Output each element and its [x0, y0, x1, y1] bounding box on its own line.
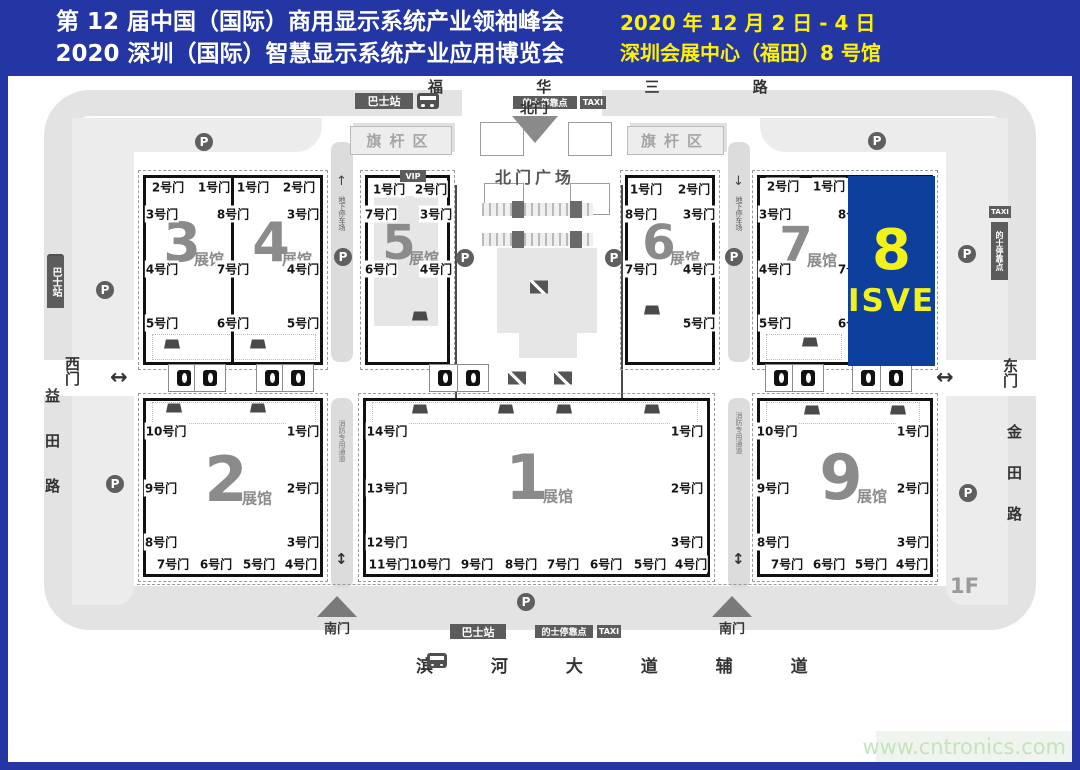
- east-gate-label: 东门: [1000, 358, 1021, 388]
- door-label: 6号门: [216, 315, 250, 332]
- door-label: 6号门: [589, 556, 623, 573]
- ac-unit-icon: [890, 406, 906, 415]
- escalator-icon: [530, 281, 548, 294]
- door-label: 10号门: [409, 556, 452, 573]
- arrow-updown-icon: ↕: [732, 550, 745, 568]
- door-label: 1号门: [629, 181, 663, 198]
- escalator-block: [512, 231, 524, 248]
- taxi-badge: TAXI: [989, 206, 1011, 218]
- door-label: 4号门: [682, 261, 716, 278]
- door-label: 3号门: [682, 206, 716, 223]
- door-label: 7号门: [770, 556, 804, 573]
- door-label: 4号门: [145, 261, 179, 278]
- taxi-badge: TAXI: [580, 96, 606, 109]
- bus-station-badge-bottom: 巴士站: [450, 624, 506, 639]
- taxi-stop-badge-bottom: 的士停靠点: [535, 625, 593, 638]
- door-label: 12号门: [366, 534, 409, 551]
- west-gate-arrow-icon: ↔: [110, 365, 128, 389]
- escalator-icon: [508, 372, 526, 385]
- arrow-updown-icon: ↕: [335, 550, 348, 568]
- ac-unit-icon: [412, 405, 428, 414]
- west-gate-label: 西门: [62, 356, 83, 386]
- door-label: 5号门: [633, 556, 667, 573]
- door-label: 8号门: [756, 534, 790, 551]
- event-date-venue: 2020 年 12 月 2 日 - 4 日 深圳会展中心（福田）8 号馆: [620, 8, 881, 68]
- event-title-line2: 2020 深圳（国际）智慧显示系统产业应用博览会: [0, 38, 620, 70]
- south-gate-arrow-icon: [712, 596, 752, 617]
- door-label: 9号门: [144, 480, 178, 497]
- door-label: 3号门: [145, 206, 179, 223]
- hall-suffix: 展馆: [857, 486, 887, 507]
- ac-unit-icon: [644, 405, 660, 414]
- door-label: 6号门: [199, 556, 233, 573]
- parking-icon: P: [958, 245, 976, 263]
- vip-badge: VIP: [400, 170, 426, 182]
- ac-unit-icon: [802, 338, 818, 347]
- parking-icon: P: [517, 593, 535, 611]
- door-label: 4号门: [419, 261, 453, 278]
- bus-icon: [427, 653, 447, 668]
- road-name-west: 益田路: [42, 388, 63, 523]
- door-label: 5号门: [854, 556, 888, 573]
- south-dashed-boundary: [137, 584, 937, 585]
- door-label: 2号门: [677, 181, 711, 198]
- door-label: 3号门: [896, 534, 930, 551]
- flag-area-east: 旗杆区: [627, 126, 724, 155]
- parking-icon: P: [868, 132, 886, 150]
- door-label: 11号门: [368, 556, 411, 573]
- elevator-icon: [282, 364, 314, 392]
- central-building-annex: [519, 333, 577, 358]
- fire-lane-label-west: 消防专用通道: [337, 420, 347, 462]
- door-label: 4号门: [758, 261, 792, 278]
- door-label: 2号门: [414, 181, 448, 198]
- event-venue: 深圳会展中心（福田）8 号馆: [620, 38, 881, 68]
- parking-icon: P: [195, 133, 213, 151]
- elevator-icon: [792, 364, 824, 392]
- hall-suffix: 展馆: [807, 250, 837, 271]
- ac-unit-icon: [166, 404, 182, 413]
- door-label: 1号门: [236, 179, 270, 196]
- door-label: 13号门: [366, 480, 409, 497]
- ac-unit-icon: [498, 405, 514, 414]
- door-label: 2号门: [282, 179, 316, 196]
- door-label: 6号门: [364, 261, 398, 278]
- door-label: 3号门: [670, 534, 704, 551]
- watermark: www.cntronics.com: [862, 735, 1066, 759]
- door-label: 5号门: [286, 315, 320, 332]
- frame-right: [1072, 0, 1080, 770]
- elevator-icon: [194, 364, 226, 392]
- escalator-block: [570, 201, 582, 218]
- door-label: 5号门: [758, 315, 792, 332]
- fire-lane-label-east: 消防专用通道: [734, 412, 744, 454]
- east-gate-arrow-icon: ↔: [936, 365, 954, 389]
- bus-icon: [417, 93, 439, 109]
- door-label: 14号门: [366, 423, 409, 440]
- door-label: 8号门: [624, 206, 658, 223]
- door-label: 7号门: [216, 261, 250, 278]
- parking-icon: P: [456, 249, 474, 267]
- door-label: 7号门: [156, 556, 190, 573]
- door-label: 1号门: [286, 423, 320, 440]
- door-label: 3号门: [286, 534, 320, 551]
- door-label: 2号门: [286, 480, 320, 497]
- ac-unit-icon: [250, 340, 266, 349]
- door-label: 2号门: [151, 179, 185, 196]
- escalator-block: [512, 201, 524, 218]
- escalator-block: [570, 231, 582, 248]
- parking-icon: P: [96, 281, 114, 299]
- arrow-up-icon: ↑: [336, 174, 347, 189]
- hall-8-isve-label: ISVE: [848, 283, 935, 319]
- road-name-north: 福 华 三 路: [428, 76, 812, 97]
- door-label: 4号门: [286, 261, 320, 278]
- door-label: 5号门: [682, 315, 716, 332]
- door-label: 3号门: [286, 206, 320, 223]
- ac-unit-icon: [250, 404, 266, 413]
- arrow-down-icon: ↓: [733, 174, 744, 189]
- floor-1f-label: 1F: [950, 574, 979, 598]
- south-gate-label: 南门: [719, 618, 745, 637]
- door-label: 10号门: [756, 423, 799, 440]
- parking-icon: P: [106, 475, 124, 493]
- door-label: 1号门: [197, 179, 231, 196]
- north-gate-arrow-icon: [512, 116, 558, 143]
- bus-station-badge-top: 巴士站: [355, 93, 413, 109]
- ac-unit-icon: [644, 306, 660, 315]
- header-banner: 第 12 届中国（国际）商用显示系统产业领袖峰会 2020 深圳（国际）智慧显示…: [0, 0, 1080, 76]
- frame-bottom: [0, 762, 1080, 770]
- door-label: 1号门: [670, 423, 704, 440]
- plaza-kiosk: [568, 122, 612, 156]
- escalator-icon: [554, 372, 572, 385]
- door-label: 2号门: [766, 178, 800, 195]
- exhibition-map-page: 第 12 届中国（国际）商用显示系统产业领袖峰会 2020 深圳（国际）智慧显示…: [0, 0, 1080, 770]
- plaza-wall-right: [621, 185, 623, 398]
- road-name-south: 滨 河 大 道 辅 道: [416, 652, 834, 677]
- door-label: 2号门: [896, 480, 930, 497]
- south-gate-label: 南门: [324, 618, 350, 637]
- bus-station-badge-left: 巴士站: [47, 256, 64, 308]
- ac-unit-icon: [556, 405, 572, 414]
- elevator-icon: [457, 364, 489, 392]
- door-label: 3号门: [419, 206, 453, 223]
- south-gate-arrow-icon: [317, 596, 357, 617]
- parking-icon: P: [959, 484, 977, 502]
- hall-suffix: 展馆: [242, 488, 272, 509]
- door-label: 1号门: [372, 181, 406, 198]
- hall-8-number: 8: [872, 223, 911, 279]
- door-label: 1号门: [812, 178, 846, 195]
- door-label: 9号门: [460, 556, 494, 573]
- door-label: 5号门: [242, 556, 276, 573]
- door-label: 4号门: [284, 556, 318, 573]
- event-title-line1: 第 12 届中国（国际）商用显示系统产业领袖峰会: [0, 6, 620, 38]
- door-label: 1号门: [896, 423, 930, 440]
- door-label: 5号门: [145, 315, 179, 332]
- parking-icon: P: [334, 248, 352, 266]
- door-label: 4号门: [674, 556, 708, 573]
- event-date: 2020 年 12 月 2 日 - 4 日: [620, 8, 881, 38]
- door-label: 7号门: [546, 556, 580, 573]
- door-label: 8号门: [144, 534, 178, 551]
- door-label: 6号门: [812, 556, 846, 573]
- flag-area-west: 旗杆区: [350, 126, 452, 155]
- parking-icon: P: [605, 249, 623, 267]
- ac-unit-icon: [804, 406, 820, 415]
- door-label: 10号门: [145, 423, 188, 440]
- door-label: 9号门: [756, 480, 790, 497]
- door-label: 8号门: [504, 556, 538, 573]
- hall-suffix: 展馆: [543, 486, 573, 507]
- door-label: 4号门: [895, 556, 929, 573]
- underground-parking-label-west: 地下停车场: [337, 196, 347, 231]
- door-label: 7号门: [624, 261, 658, 278]
- underground-parking-label-east: 地下停车场: [734, 196, 744, 231]
- taxi-badge: TAXI: [597, 625, 621, 638]
- event-titles: 第 12 届中国（国际）商用显示系统产业领袖峰会 2020 深圳（国际）智慧显示…: [0, 6, 620, 70]
- north-plaza-label: 北门广场: [495, 164, 575, 188]
- road-name-east: 金田路: [1004, 424, 1025, 547]
- elevator-icon: [880, 364, 912, 392]
- door-label: 3号门: [758, 206, 792, 223]
- hall-8-highlight: 8 ISVE: [848, 176, 935, 366]
- door-label: 8号门: [216, 206, 250, 223]
- parking-icon: P: [725, 248, 743, 266]
- frame-left: [0, 0, 8, 770]
- door-label: 2号门: [670, 480, 704, 497]
- north-gate-label: 北门: [520, 98, 548, 118]
- ac-unit-icon: [164, 340, 180, 349]
- taxi-stop-badge-right: 的士停靠点: [991, 222, 1008, 280]
- ac-unit-icon: [412, 312, 428, 321]
- door-label: 7号门: [364, 206, 398, 223]
- east-gate-opening: [944, 360, 1036, 396]
